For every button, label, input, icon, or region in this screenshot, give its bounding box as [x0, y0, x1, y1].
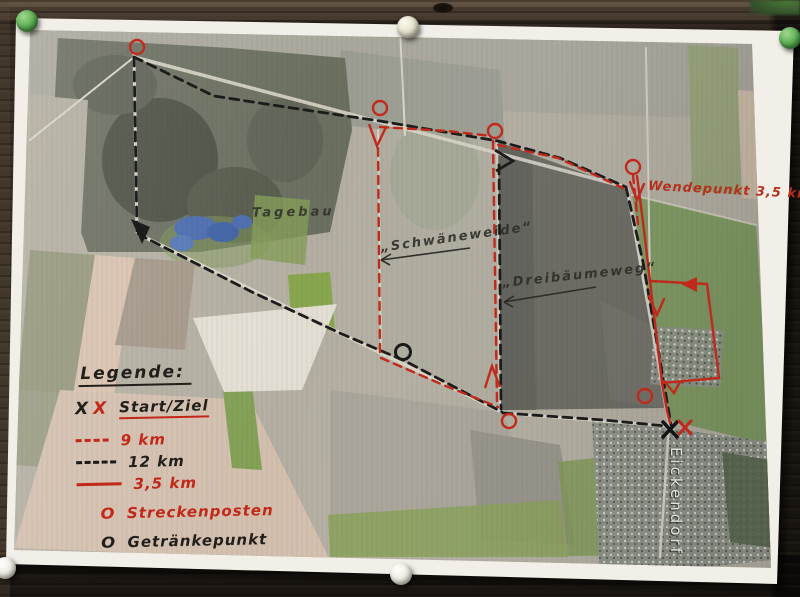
legend-item-start-ziel: X X Start/Ziel: [75, 396, 285, 418]
red-circle-icon: O: [100, 504, 114, 522]
legend-title: Legende:: [78, 362, 191, 387]
legend-item-streckenposten: O Streckenposten: [101, 501, 287, 523]
black-circle-icon: O: [101, 533, 115, 551]
red-x-icon: X: [93, 399, 107, 419]
push-pin-top-center: [397, 16, 419, 38]
legend-label-9km: 9 km: [120, 430, 166, 449]
label-town-eickendorf: Eickendorf: [667, 447, 685, 572]
red-dashed-line-icon: [76, 438, 109, 442]
legend-label-streckenposten: Streckenposten: [127, 501, 274, 522]
legend-label-12km: 12 km: [128, 452, 185, 471]
push-pin-top-left: [16, 10, 38, 32]
legend-item-12km: 12 km: [76, 450, 286, 472]
legend-label-3-5km: 3,5 km: [133, 474, 197, 493]
legend-label-start-ziel: Start/Ziel: [119, 396, 209, 419]
wood-board: Tagebau „Schwäneweide“ „Dreibäumeweg“ We…: [0, 0, 800, 597]
black-dashed-line-icon: [76, 460, 116, 464]
black-x-icon: X: [75, 399, 89, 419]
red-solid-line-icon: [77, 482, 122, 486]
legend-item-3-5km: 3,5 km: [76, 472, 286, 494]
push-pin-bottom-center: [390, 563, 412, 585]
map-legend: Legende: X X Start/Ziel 9 km 12 km 3,5 k…: [74, 360, 288, 552]
legend-label-getraenkepunkt: Getränkepunkt: [127, 530, 267, 551]
legend-item-9km: 9 km: [75, 428, 285, 450]
label-tagebau: Tagebau: [252, 204, 335, 220]
push-pin-top-right: [779, 27, 800, 49]
